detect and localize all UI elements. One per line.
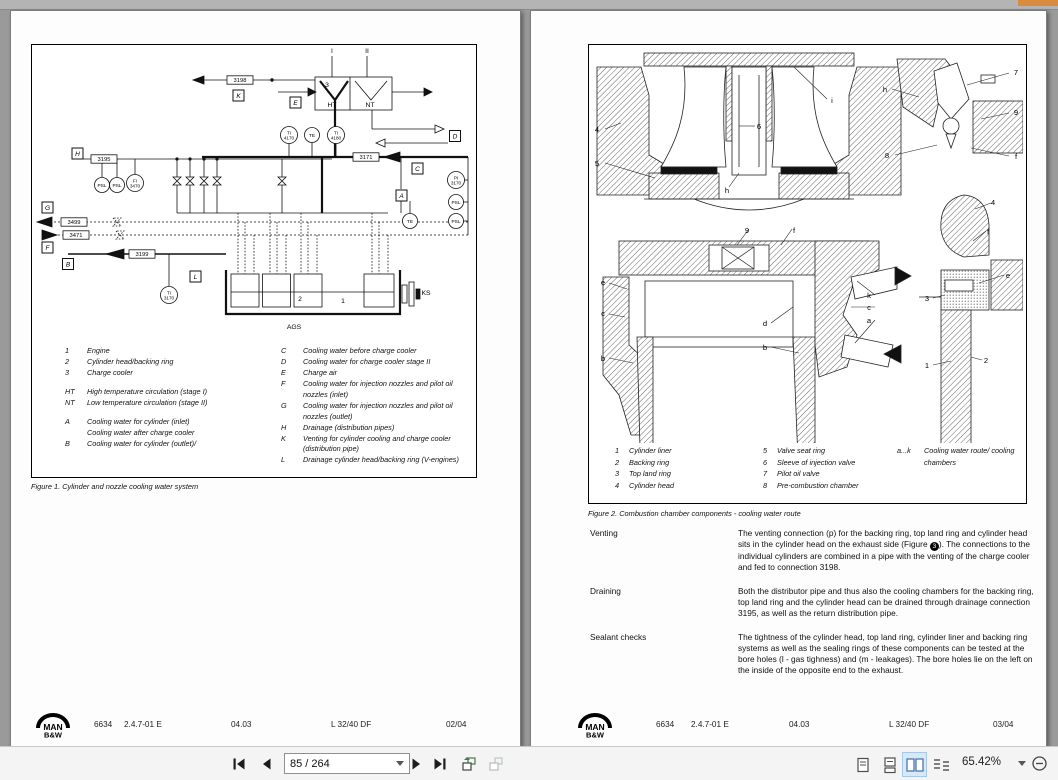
svg-text:L: L: [194, 274, 198, 281]
legend-item: HTHigh temperature circulation (stage I): [65, 387, 281, 398]
section-text: Both the distributor pipe and thus also …: [738, 586, 1038, 619]
svg-text:C: C: [415, 166, 420, 173]
svg-text:II: II: [365, 48, 369, 55]
svg-text:3: 3: [325, 82, 329, 89]
svg-text:d: d: [763, 319, 767, 328]
figure1-diagram: KEHGFBLACD319831953171349934713199TI4170…: [32, 45, 473, 345]
svg-text:4170: 4170: [284, 136, 295, 141]
svg-text:1: 1: [925, 361, 929, 370]
legend-item: 1Engine: [65, 346, 281, 357]
figure2-diagram: 456hih798f9fecbdbkca4fe312: [589, 45, 1023, 443]
legend-item: CCooling water before charge cooler: [281, 346, 470, 357]
svg-text:B&W: B&W: [44, 731, 63, 740]
svg-text:K: K: [236, 93, 241, 100]
svg-text:c: c: [601, 309, 605, 318]
two-page-continuous-icon: [931, 756, 951, 774]
svg-text:TE: TE: [309, 133, 315, 139]
first-page-icon: [231, 756, 247, 772]
svg-text:H: H: [75, 151, 80, 158]
svg-text:I: I: [331, 48, 333, 55]
legend-item: 7Pilot oil valve: [763, 468, 897, 480]
page-dropdown-caret-icon: [396, 761, 404, 766]
svg-text:2: 2: [298, 296, 302, 303]
figure1-frame: KEHGFBLACD319831953171349934713199TI4170…: [31, 44, 477, 478]
page-left: KEHGFBLACD319831953171349934713199TI4170…: [10, 10, 521, 747]
svg-text:h: h: [725, 186, 729, 195]
view-mode-continuous[interactable]: [877, 752, 902, 777]
page-footer: MAN B&W 6634 2.4.7-01 E 04.03 L 32/40 DF…: [11, 710, 520, 740]
page-number-value: 85 / 264: [290, 758, 330, 770]
figure1-caption: Figure 1. Cylinder and nozzle cooling wa…: [31, 482, 198, 491]
svg-text:3471: 3471: [70, 233, 83, 239]
first-page-button[interactable]: [228, 753, 250, 774]
single-page-icon: [854, 756, 872, 774]
next-page-button[interactable]: [405, 753, 427, 774]
continuous-scroll-icon: [881, 756, 899, 774]
svg-text:5: 5: [595, 159, 599, 168]
svg-text:PSL: PSL: [451, 200, 460, 206]
minus-circle-icon: [1031, 755, 1048, 772]
legend-item: NTLow temperature circulation (stage II): [65, 398, 281, 409]
legend-item: a...kCooling water route/ cooling chambe…: [897, 445, 1022, 468]
svg-text:B&W: B&W: [586, 731, 605, 740]
man-bw-logo: MAN B&W: [34, 712, 72, 739]
top-bar: [0, 0, 1058, 10]
svg-text:TE: TE: [407, 219, 413, 225]
doc-date: 04.03: [789, 720, 810, 729]
doc-number: 6634: [94, 720, 112, 729]
figure2-legend: 1Cylinder liner2Backing ring3Top land ri…: [615, 445, 1022, 492]
svg-text:8: 8: [885, 151, 889, 160]
legend-item: 2Cylinder head/backing ring: [65, 357, 281, 368]
svg-text:h: h: [883, 85, 887, 94]
view-mode-two-page-continuous[interactable]: [928, 752, 953, 777]
previous-view-icon: [460, 755, 478, 773]
viewer-toolbar: 85 / 264: [0, 746, 1058, 780]
legend-item: Cooling water after charge cooler: [65, 428, 281, 439]
man-bw-logo: MAN B&W: [576, 712, 614, 739]
svg-text:A: A: [398, 193, 403, 200]
legend-item: ECharge air: [281, 368, 470, 379]
legend-item: 2Backing ring: [615, 457, 763, 469]
svg-text:1: 1: [341, 298, 345, 305]
sheet-number: 03/04: [993, 720, 1014, 729]
legend-item: KVenting for cylinder cooling and charge…: [281, 434, 470, 456]
svg-text:3199: 3199: [136, 252, 149, 258]
svg-text:3170: 3170: [164, 296, 175, 301]
svg-text:f: f: [987, 227, 990, 236]
legend-item: HDrainage (distribution pipes): [281, 423, 470, 434]
legend-item: 8Pre-combustion chamber: [763, 480, 897, 492]
page-footer: MAN B&W 6634 2.4.7-01 E 04.03 L 32/40 DF…: [531, 710, 1046, 740]
svg-text:7: 7: [1014, 68, 1018, 77]
zoom-dropdown-caret-icon[interactable]: [1018, 761, 1026, 766]
legend-column: 5Valve seat ring6Sleeve of injection val…: [763, 445, 897, 492]
svg-text:HT: HT: [327, 102, 336, 109]
legend-item: 3Charge cooler: [65, 368, 281, 379]
legend-item: 1Cylinder liner: [615, 445, 763, 457]
svg-text:4180: 4180: [331, 136, 342, 141]
page-number-field[interactable]: 85 / 264: [284, 753, 410, 774]
legend-column: a...kCooling water route/ cooling chambe…: [897, 445, 1022, 492]
view-mode-single-page[interactable]: [850, 752, 875, 777]
svg-text:b: b: [601, 354, 605, 363]
sheet-number: 02/04: [446, 720, 467, 729]
section-label: Sealant checks: [590, 632, 738, 676]
svg-text:e: e: [1006, 271, 1010, 280]
doc-date: 04.03: [231, 720, 252, 729]
zoom-out-button[interactable]: [1028, 753, 1050, 774]
next-view-icon: [487, 755, 505, 773]
figure2-frame: 456hih798f9fecbdbkca4fe312 1Cylinder lin…: [588, 44, 1027, 504]
svg-text:PSL: PSL: [451, 219, 460, 225]
legend-item: FCooling water for injection nozzles and…: [281, 379, 470, 401]
svg-text:9: 9: [1014, 108, 1018, 117]
body-text-sections: VentingThe venting connection (p) for th…: [590, 528, 1038, 676]
svg-text:3198: 3198: [234, 78, 247, 84]
svg-text:k: k: [867, 291, 871, 300]
legend-item: 6Sleeve of injection valve: [763, 457, 897, 469]
svg-text:NT: NT: [365, 102, 374, 109]
pdf-viewer-window: { "logo": {"line1": "MAN", "line2": "B&W…: [0, 0, 1058, 780]
legend-column: 1Engine2Cylinder head/backing ring3Charg…: [65, 346, 281, 466]
doc-number: 6634: [656, 720, 674, 729]
last-page-button[interactable]: [429, 753, 451, 774]
last-page-icon: [432, 756, 448, 772]
svg-text:3171: 3171: [360, 155, 373, 161]
svg-text:AGS: AGS: [287, 324, 302, 331]
legend-item: 5Valve seat ring: [763, 445, 897, 457]
svg-text:E: E: [293, 100, 298, 107]
figure2-caption: Figure 2. Combustion chamber components …: [588, 509, 801, 518]
two-page-view-icon: [905, 756, 925, 774]
legend-item: 4Cylinder head: [615, 480, 763, 492]
top-bar-accent: [1018, 0, 1058, 6]
section-text: The venting connection (p) for the backi…: [738, 528, 1038, 573]
doc-section: 2.4.7-01 E: [691, 720, 729, 729]
legend-column: CCooling water before charge coolerDCool…: [281, 346, 470, 466]
svg-text:3: 3: [925, 294, 929, 303]
svg-text:PSL: PSL: [97, 183, 106, 189]
svg-text:4: 4: [595, 125, 599, 134]
section-label: Draining: [590, 586, 738, 619]
svg-text:3470: 3470: [130, 184, 141, 189]
section-text: The tightness of the cylinder head, top …: [738, 632, 1038, 676]
svg-text:4: 4: [991, 198, 995, 207]
svg-text:3170: 3170: [451, 181, 462, 186]
legend-item: DCooling water for charge cooler stage I…: [281, 357, 470, 368]
page-right: 456hih798f9fecbdbkca4fe312 1Cylinder lin…: [530, 10, 1047, 747]
svg-text:i: i: [831, 96, 833, 105]
doc-section: 2.4.7-01 E: [124, 720, 162, 729]
svg-text:G: G: [45, 205, 50, 212]
zoom-level[interactable]: 65.42%: [962, 756, 1001, 768]
next-view-button[interactable]: [485, 753, 507, 774]
legend-item: 3Top land ring: [615, 468, 763, 480]
legend-item: BCooling water for cylinder (outlet)/: [65, 439, 281, 450]
legend-item: ACooling water for cylinder (inlet): [65, 417, 281, 428]
previous-view-button[interactable]: [458, 753, 480, 774]
svg-text:B: B: [66, 261, 71, 268]
figure-reference-badge: 3: [930, 542, 939, 551]
svg-text:f: f: [793, 226, 796, 235]
view-mode-two-page[interactable]: [902, 752, 927, 777]
svg-text:a: a: [867, 316, 872, 325]
svg-text:6: 6: [757, 122, 761, 131]
svg-text:KS: KS: [421, 290, 431, 297]
svg-text:9: 9: [745, 226, 749, 235]
legend-item: GCooling water for injection nozzles and…: [281, 401, 470, 423]
next-page-icon: [408, 756, 424, 772]
engine-type: L 32/40 DF: [331, 720, 371, 729]
svg-text:3499: 3499: [68, 220, 81, 226]
svg-text:D: D: [453, 133, 458, 140]
svg-text:c: c: [867, 303, 871, 312]
svg-text:2: 2: [984, 356, 988, 365]
legend-item: LDrainage cylinder head/backing ring (V-…: [281, 455, 470, 466]
section-label: Venting: [590, 528, 738, 573]
previous-page-button[interactable]: [256, 753, 278, 774]
figure1-legend: 1Engine2Cylinder head/backing ring3Charg…: [65, 346, 470, 466]
svg-text:e: e: [601, 278, 605, 287]
svg-text:3195: 3195: [98, 157, 111, 163]
legend-column: 1Cylinder liner2Backing ring3Top land ri…: [615, 445, 763, 492]
previous-page-icon: [259, 756, 275, 772]
svg-text:b: b: [763, 343, 767, 352]
svg-text:PSL: PSL: [112, 183, 121, 189]
engine-type: L 32/40 DF: [889, 720, 929, 729]
